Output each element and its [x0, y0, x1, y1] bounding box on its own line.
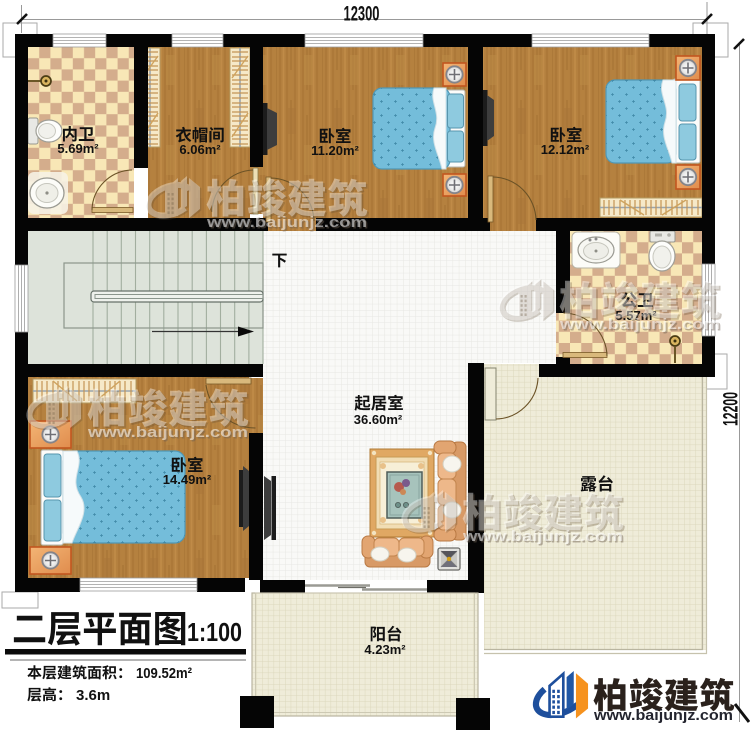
svg-text:www.baijunjz.com: www.baijunjz.com	[206, 214, 367, 231]
svg-text:109.52m²: 109.52m²	[136, 665, 192, 682]
svg-text:14.49m²: 14.49m²	[163, 472, 212, 487]
svg-text:www.baijunjz.com: www.baijunjz.com	[462, 528, 623, 545]
svg-text:www.baijunjz.com: www.baijunjz.com	[87, 424, 248, 441]
svg-text:12300: 12300	[344, 3, 380, 26]
svg-text:6.06m²: 6.06m²	[179, 142, 221, 157]
svg-text:12200: 12200	[720, 392, 743, 426]
svg-text:5.69m²: 5.69m²	[57, 141, 99, 156]
svg-text:11.20m²: 11.20m²	[311, 143, 359, 158]
svg-text:36.60m²: 36.60m²	[354, 412, 403, 427]
svg-text:3.6m: 3.6m	[76, 687, 110, 704]
svg-text:www.baijunjz.com: www.baijunjz.com	[559, 316, 720, 333]
svg-text:www.baijunjz.com: www.baijunjz.com	[593, 708, 733, 724]
svg-text:12.12m²: 12.12m²	[541, 142, 590, 157]
svg-text:1:100: 1:100	[187, 617, 242, 647]
svg-text:4.23m²: 4.23m²	[364, 642, 406, 657]
